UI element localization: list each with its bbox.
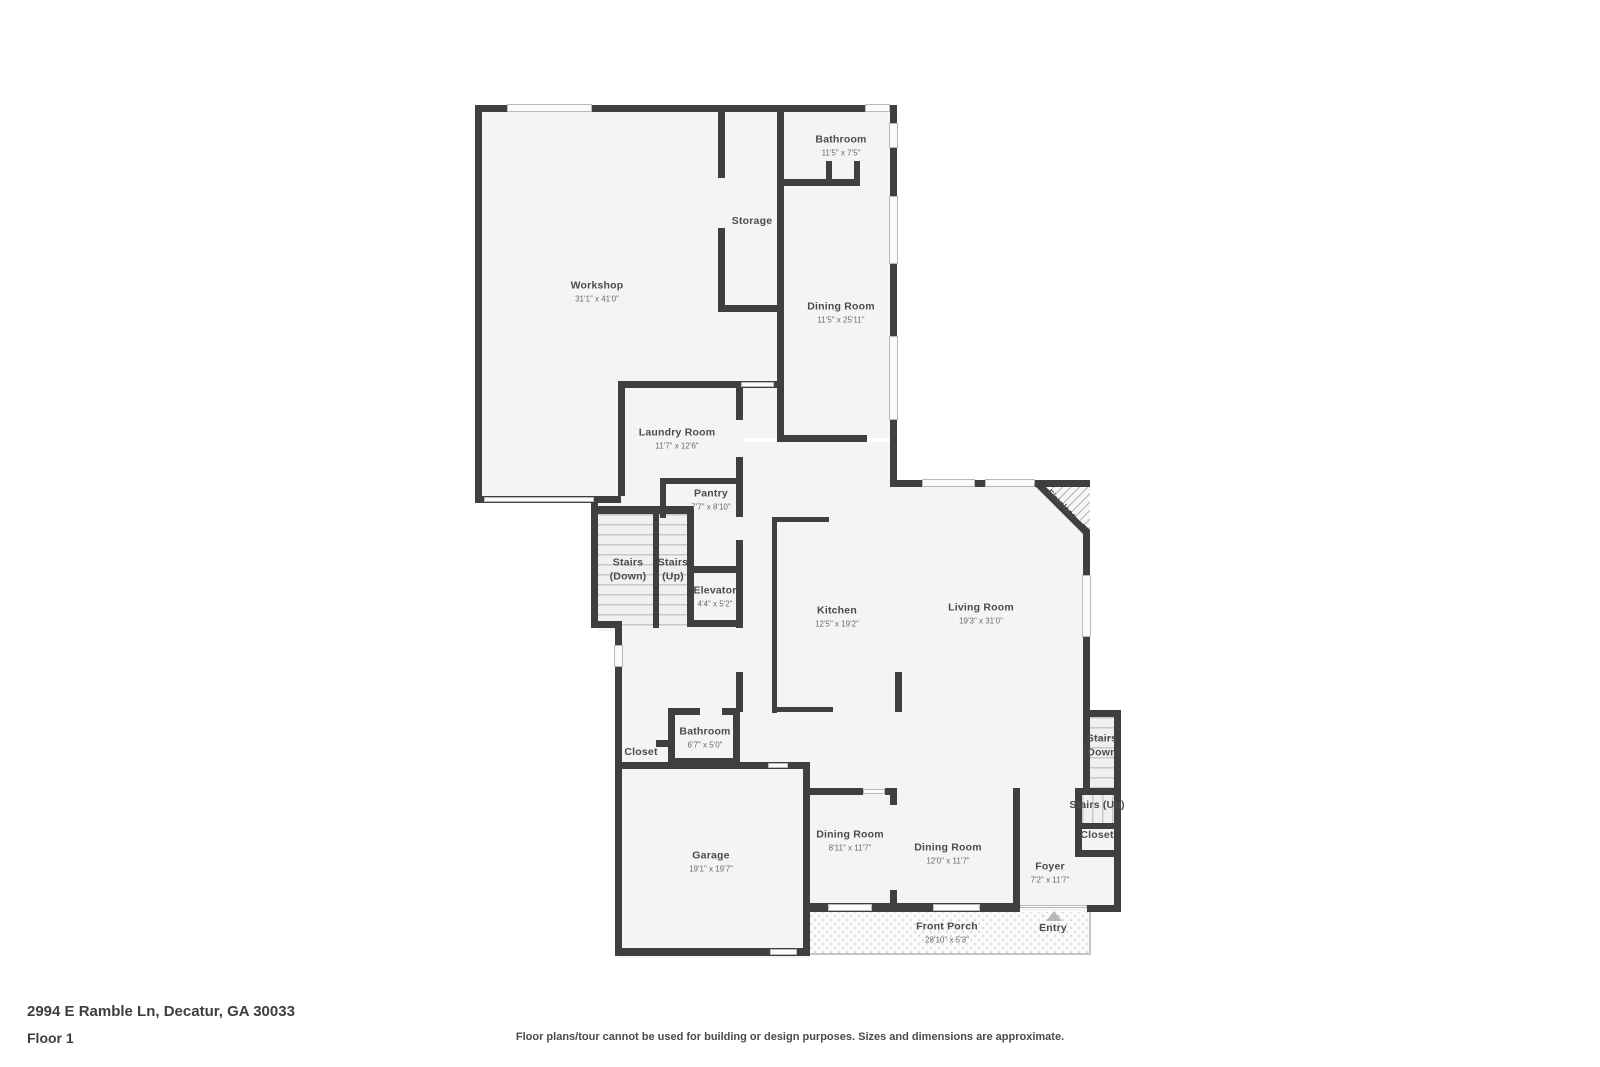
window-opening [770,949,797,955]
room-label-garage: Garage 19'1" x 19'7" [689,849,733,874]
room-name: Stairs (Down) [1078,732,1126,759]
wall-segment [618,381,625,496]
room-label-closet-mid: Closet [624,746,657,760]
room-label-pantry: Pantry 7'7" x 8'10" [691,487,730,512]
room-dims: 12'5" x 19'2" [815,619,859,629]
room-label-elevator: Elevator 4'4" x 5'2" [693,584,736,609]
room-dims: 4'4" x 5'2" [693,599,736,609]
room-dims: 31'1" x 41'0" [571,294,624,304]
room-label-dining-upper: Dining Room 11'5" x 25'11" [807,300,875,325]
room-name: Workshop [571,279,624,293]
wall-segment [1013,788,1020,910]
room-label-stairs-down-left: Stairs (Down) [604,556,652,583]
floor-label: Floor 1 [27,1030,74,1046]
wall-segment [890,788,897,805]
room-label-bathroom-upper: Bathroom 11'5" x 7'5" [815,133,866,158]
room-dims: 7'7" x 8'10" [691,502,730,512]
address-text: 2994 E Ramble Ln, Decatur, GA 30033 [27,1003,295,1020]
wall-segment [807,788,863,795]
room-name: Front Porch [916,920,978,934]
wall-segment [1114,850,1121,912]
room-label-stairs-down-right: Stairs (Down) [1078,732,1126,759]
wall-segment [895,672,902,712]
room-name: Pantry [691,487,730,501]
wall-segment [772,707,833,712]
window-opening [933,904,980,911]
room-name: Closet [624,746,657,760]
window-opening [889,123,898,148]
room-dims: 12'0" x 11'7" [914,856,982,866]
room-label-stairs-up-left: Stairs (Up) [649,556,697,583]
room-label-laundry: Laundry Room 11'7" x 12'6" [639,426,716,451]
room-dims: 6'7" x 5'0" [679,740,730,750]
room-dims: 19'3" x 31'0" [948,616,1014,626]
room-name: Laundry Room [639,426,716,440]
wall-segment [591,496,598,628]
room-name: Dining Room [807,300,875,314]
window-opening [985,479,1035,487]
wall-segment [1087,905,1121,912]
window-opening [889,336,898,420]
room-label-workshop: Workshop 31'1" x 41'0" [571,279,624,304]
window-opening [768,763,788,768]
room-dims: 8'11" x 11'7" [816,843,884,853]
room-label-foyer: Foyer 7'2" x 11'7" [1031,860,1070,885]
room-dims: 19'1" x 19'7" [689,864,733,874]
room-label-stairs-up-right: Stairs (Up) [1069,799,1124,813]
room-dims: 11'5" x 7'5" [815,148,866,158]
room-label-bathroom-mid: Bathroom 6'7" x 5'0" [679,725,730,750]
room-dims: 11'5" x 25'11" [807,315,875,325]
room-name: Stairs (Down) [604,556,652,583]
window-opening [922,479,975,487]
room-label-storage: Storage [732,215,773,229]
room-name: Entry [1039,922,1067,936]
wall-segment [615,621,622,955]
wall-segment [1075,823,1121,829]
room-label-dining-bottom-left: Dining Room 8'11" x 11'7" [816,828,884,853]
room-label-entry: Entry [1039,922,1067,936]
wall-segment [777,435,867,442]
room-dims: 28'10" x 5'3" [916,935,978,945]
room-name: Closet [1080,829,1113,843]
room-name: Living Room [948,601,1014,615]
room-name: Garage [689,849,733,863]
window-opening [889,196,898,264]
room-label-front-porch: Front Porch 28'10" x 5'3" [916,920,978,945]
room-label-closet-right: Closet [1080,829,1113,843]
room-name: Stairs (Up) [1069,799,1124,813]
window-opening [828,904,872,911]
wall-segment [733,708,740,765]
window-opening [614,645,623,667]
wall-segment [854,161,860,181]
window-opening [865,104,890,112]
wall-segment [777,112,784,442]
room-name: Dining Room [816,828,884,842]
entry-arrow-icon [1046,911,1062,921]
wall-segment [668,708,675,765]
room-name: Storage [732,215,773,229]
wall-segment [784,179,860,186]
room-name: Foyer [1031,860,1070,874]
wall-segment [687,620,743,627]
disclaimer-text: Floor plans/tour cannot be used for buil… [516,1031,1064,1043]
room-label-living: Living Room 19'3" x 31'0" [948,601,1014,626]
window-opening [741,382,774,387]
room-name: Kitchen [815,604,859,618]
window-opening [484,497,594,502]
room-name: Stairs (Up) [649,556,697,583]
window-opening [863,789,885,794]
wall-segment [591,506,693,514]
wall-segment [890,105,897,487]
window-opening [1082,575,1091,637]
wall-segment [772,517,829,522]
room-dims: 7'2" x 11'7" [1031,875,1070,885]
wall-segment [718,305,784,312]
room-name: Dining Room [914,841,982,855]
window-opening [507,104,592,112]
window-opening [1020,905,1087,908]
floor-plan: Fireplace Workshop 31'1" x 41'0" Storage… [0,0,1600,1067]
wall-segment [736,457,743,517]
wall-segment [826,161,832,181]
wall-segment [736,540,743,628]
wall-segment [718,228,725,312]
room-name: Bathroom [679,725,730,739]
wall-segment [475,105,482,503]
wall-segment [772,517,777,713]
wall-segment [615,740,622,747]
room-dims: 11'7" x 12'6" [639,441,716,451]
room-label-dining-bottom-right: Dining Room 12'0" x 11'7" [914,841,982,866]
wall-segment [736,672,743,712]
wall-segment [660,478,740,484]
room-name: Bathroom [815,133,866,147]
wall-segment [718,112,725,178]
wall-segment [656,740,675,747]
room-name: Elevator [693,584,736,598]
room-label-kitchen: Kitchen 12'5" x 19'2" [815,604,859,629]
